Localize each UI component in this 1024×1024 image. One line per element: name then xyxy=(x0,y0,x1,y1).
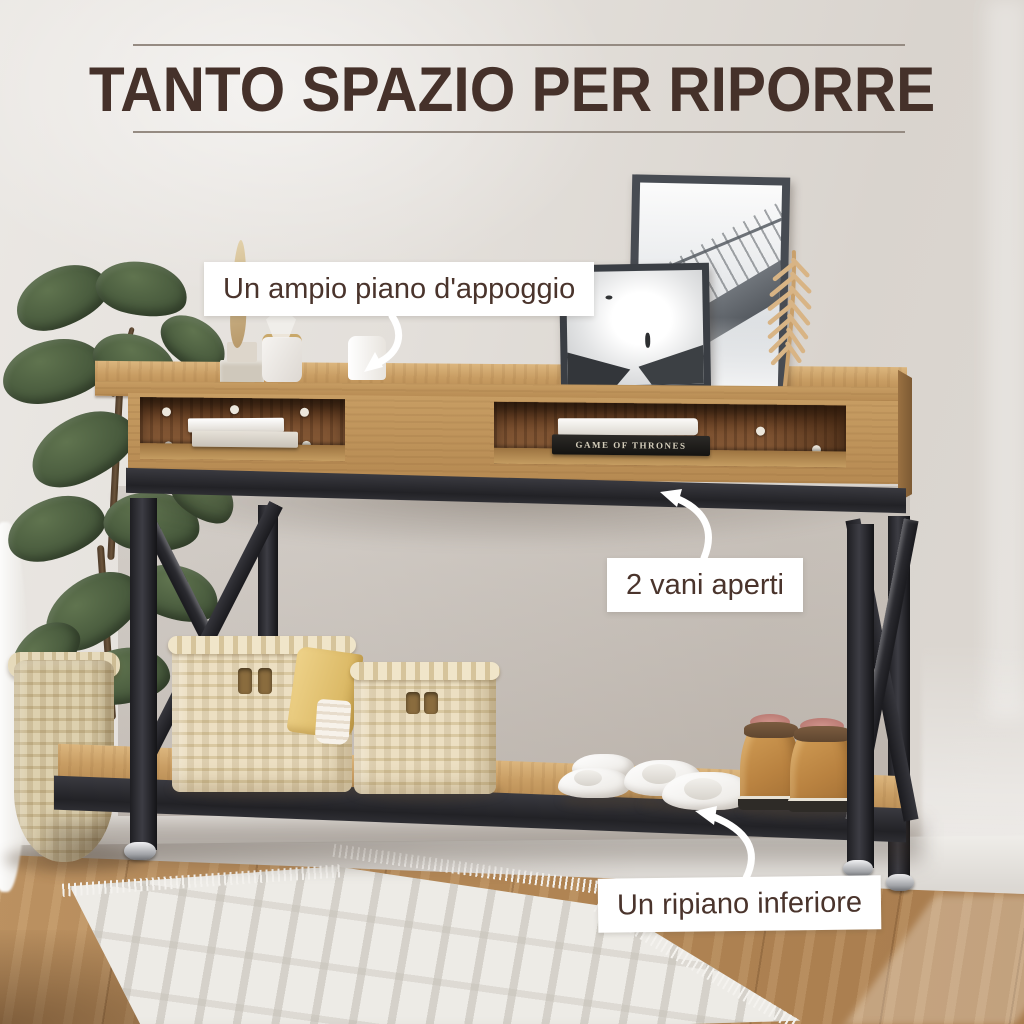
basket-handle-slot xyxy=(238,668,252,694)
curved-arrow-down-icon xyxy=(346,310,410,378)
slipper-strap xyxy=(684,778,722,800)
wicker-basket-small xyxy=(354,668,496,794)
page-title: TANTO SPAZIO PER RIPORRE xyxy=(89,54,935,126)
basket-handle-slot xyxy=(406,692,420,714)
table-front-left-leg xyxy=(130,498,157,850)
title-rule-bottom xyxy=(133,131,905,133)
table-foot xyxy=(886,874,914,891)
callout-top-surface: Un ampio piano d'appoggio xyxy=(204,262,594,316)
wicker-basket-rim xyxy=(350,662,500,680)
boot-collar xyxy=(744,722,798,738)
table-foot xyxy=(124,842,156,860)
title-rule-top xyxy=(133,44,905,46)
slipper-strap xyxy=(574,770,602,786)
basket-handle-slot xyxy=(424,692,438,714)
boot-collar xyxy=(794,726,852,742)
sculpture-base-top xyxy=(227,342,257,362)
open-compartment-right: GAME OF THRONES xyxy=(494,402,846,468)
book-spine-title: GAME OF THRONES xyxy=(552,439,710,451)
gold-leaf-decor xyxy=(753,244,827,400)
book xyxy=(192,431,298,448)
table-front-right-leg xyxy=(847,524,874,868)
screw-cap xyxy=(756,427,765,436)
photo-road-left xyxy=(567,344,630,386)
floral-fabric xyxy=(315,699,352,745)
book-white xyxy=(558,418,698,435)
photo-person xyxy=(645,332,650,347)
basket-handle-slot xyxy=(258,668,272,694)
page-title-wrap: TANTO SPAZIO PER RIPORRE xyxy=(0,48,1024,132)
screw-cap xyxy=(300,408,309,417)
photo-bird xyxy=(606,295,613,299)
book-game-of-thrones: GAME OF THRONES xyxy=(552,434,710,456)
callout-open-compartments: 2 vani aperti xyxy=(607,558,803,612)
curved-arrow-up-icon xyxy=(652,486,718,564)
screw-cap xyxy=(162,407,171,416)
marble-candle-holder xyxy=(262,334,302,382)
product-infographic: GAME OF THRONES TANTO SPAZIO PER RIPORRE… xyxy=(0,0,1024,1024)
curved-arrow-up-icon xyxy=(688,804,760,884)
table-box-right-side xyxy=(898,370,912,502)
open-compartment-left xyxy=(140,397,345,461)
screw-cap xyxy=(230,405,239,414)
